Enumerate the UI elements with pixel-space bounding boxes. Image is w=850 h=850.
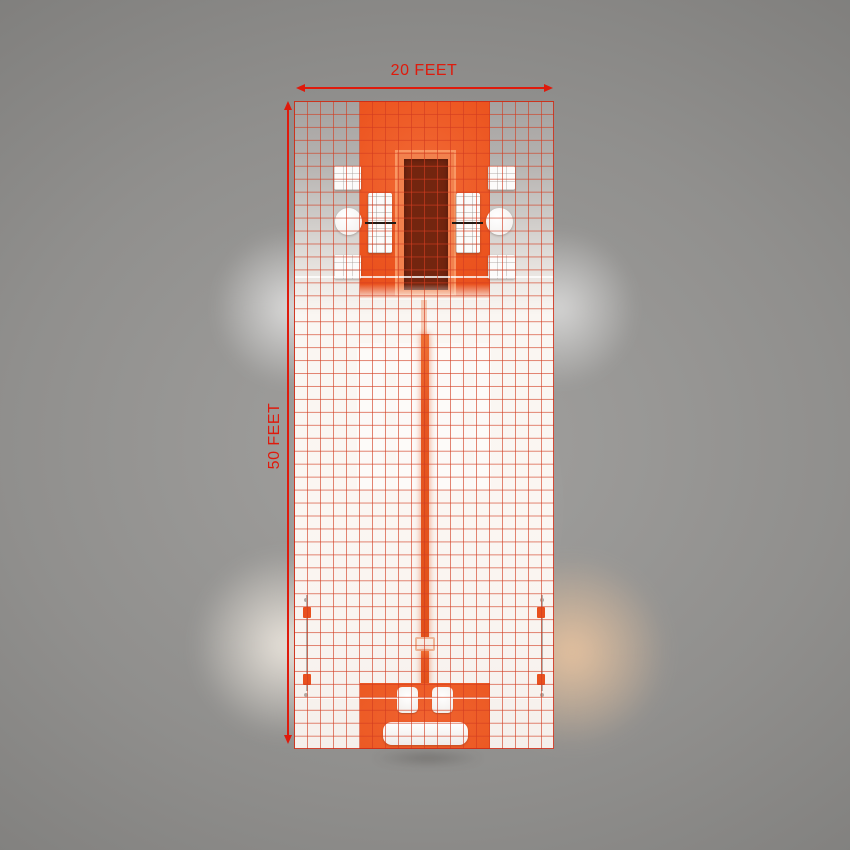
height-dimension-line <box>287 110 289 735</box>
arrowhead-left-icon <box>296 84 305 92</box>
arrowhead-down-icon <box>284 735 292 744</box>
arrowhead-right-icon <box>544 84 553 92</box>
floor-plan-scene: 20 FEET 50 FEET <box>0 0 850 850</box>
width-dimension-label: 20 FEET <box>354 62 494 80</box>
one-foot-grid <box>294 101 554 749</box>
booth-floor-plan <box>294 101 554 749</box>
height-dimension-label: 50 FEET <box>266 366 286 506</box>
floor-shadow <box>348 746 508 770</box>
arrowhead-up-icon <box>284 101 292 110</box>
width-dimension-line <box>305 87 544 89</box>
